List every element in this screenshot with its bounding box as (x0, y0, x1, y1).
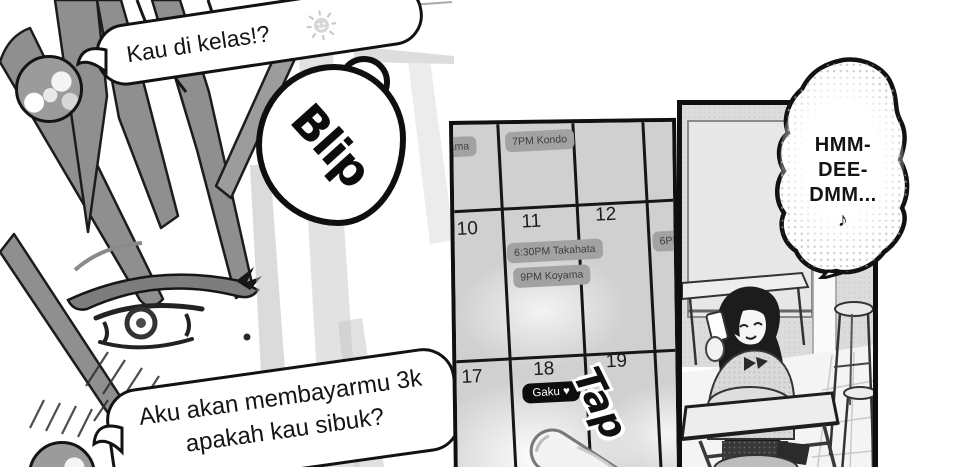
event-koyama: 9PM Koyama (513, 264, 591, 288)
bubble-tail (88, 418, 124, 458)
speech-bubble-text: HMM- DEE- DMM... ♪ (766, 133, 920, 233)
calendar-date-10: 10 (456, 218, 478, 241)
mole-dot (244, 334, 251, 341)
event-takahata: 6:30PM Takahata (507, 238, 603, 263)
speech-bubble: HMM- DEE- DMM... ♪ (766, 55, 920, 279)
sun-face-emoji-icon (305, 8, 339, 42)
manga-page: Kau di kelas!? Blip Aku akan membayarmu … (0, 0, 964, 467)
under-desk (714, 441, 810, 467)
calendar-date-12: 12 (595, 204, 617, 227)
blip-sfx-text: Blip (280, 93, 381, 197)
bubble-tail (74, 42, 108, 80)
calendar-date-11: 11 (521, 211, 542, 234)
eye (96, 306, 202, 348)
event-sayama: sayama (449, 136, 477, 159)
calendar-date-18: 18 (533, 358, 555, 381)
grid-line (449, 348, 681, 364)
hand (706, 337, 724, 361)
chat-avatar (15, 55, 83, 123)
event-kondo: 7PM Kondo (505, 129, 575, 153)
chat-message-1-text: Kau di kelas!? (97, 20, 272, 72)
calendar-date-17: 17 (461, 366, 483, 389)
